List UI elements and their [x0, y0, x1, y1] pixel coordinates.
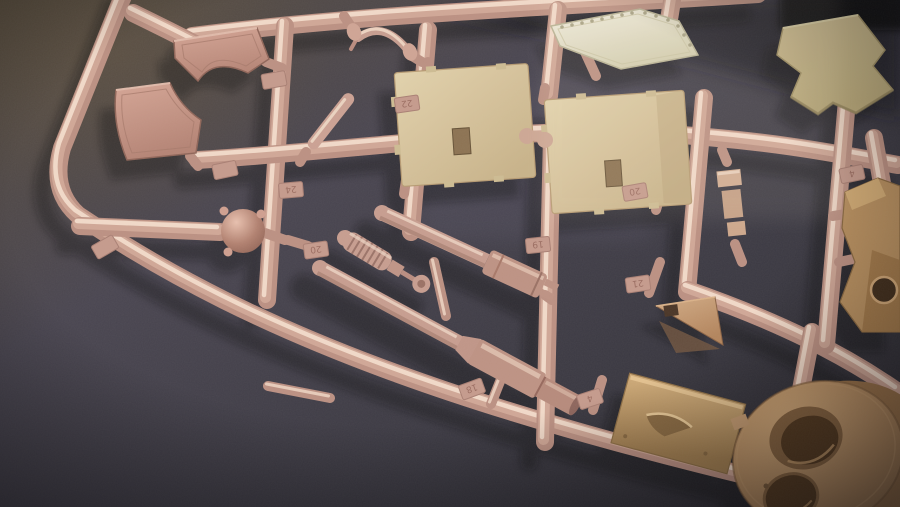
sprue-photo-canvas: 22 19 18 4 20 21 4 24 [0, 0, 900, 507]
model-kit-sprue-photo: 22 19 18 4 20 21 4 24 [0, 0, 900, 507]
photo-effects [0, 0, 900, 507]
vignette [0, 0, 900, 507]
